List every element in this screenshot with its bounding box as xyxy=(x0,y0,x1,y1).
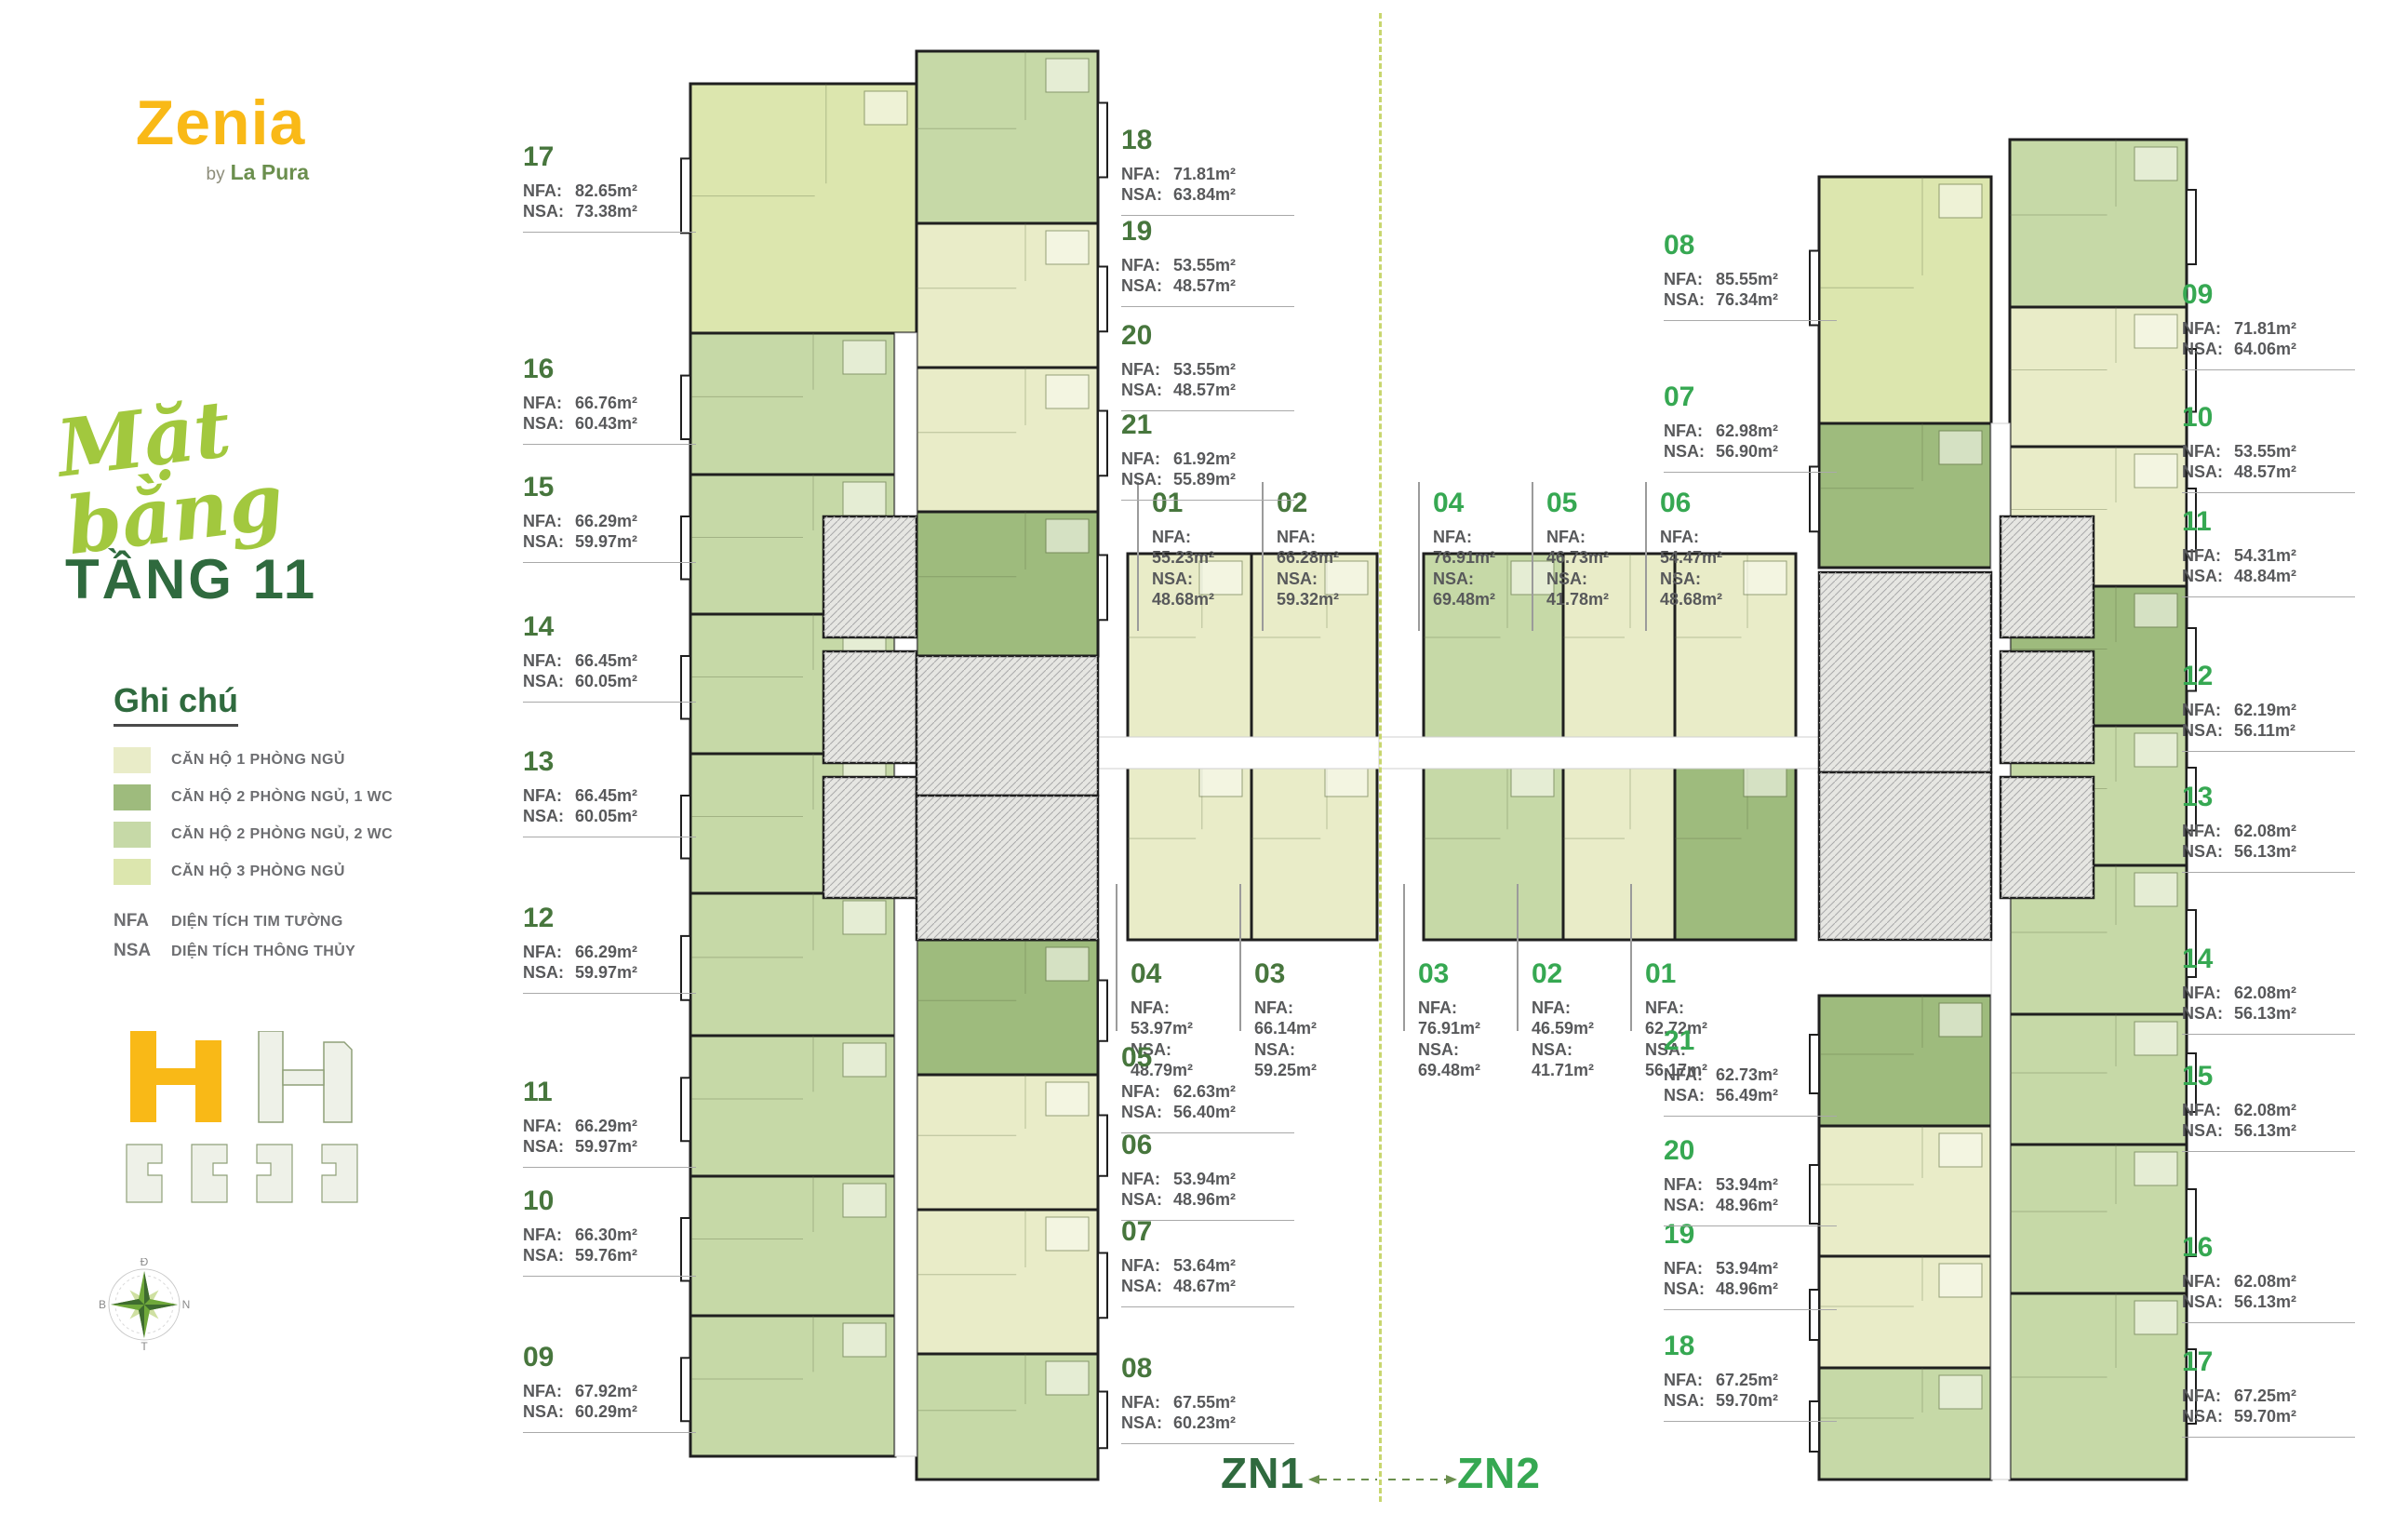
nsa-value: 59.76m² xyxy=(575,1246,637,1265)
unit-label-zn1-13: 13NFA:66.45m²NSA:60.05m² xyxy=(523,744,696,837)
legend-abbreviations: NFADIỆN TÍCH TIM TƯỜNGNSADIỆN TÍCH THÔNG… xyxy=(114,911,393,961)
label-leader-line xyxy=(1532,482,1533,631)
nfa-value: 62.08m² xyxy=(2234,822,2296,840)
unit-number: 05 xyxy=(1121,1040,1294,1076)
compass-top-label: Đ xyxy=(141,1258,149,1268)
label-underline xyxy=(1664,320,1837,321)
unit-label-zn1-20: 20NFA:53.55m²NSA:48.57m² xyxy=(1121,318,1294,411)
unit-number: 18 xyxy=(1121,123,1294,158)
nfa-label: NFA: xyxy=(1433,527,1485,548)
plan-corridor xyxy=(1379,737,1822,769)
unit-label-zn1-08: 08NFA:67.55m²NSA:60.23m² xyxy=(1121,1351,1294,1444)
legend-item-2br1wc: CĂN HỘ 2 PHÒNG NGỦ, 1 WC xyxy=(114,784,393,810)
nfa-value: 62.08m² xyxy=(2234,1272,2296,1291)
unit-label-zn2-09: 09NFA:71.81m²NSA:64.06m² xyxy=(2182,277,2355,370)
plan-core-hatch xyxy=(917,796,1098,940)
compass-bottom-label: T xyxy=(141,1340,148,1351)
unit-label-zn2-15: 15NFA:62.08m²NSA:56.13m² xyxy=(2182,1059,2355,1152)
unit-nfa-row: NFA:54.47m² xyxy=(1660,527,1770,569)
nfa-value: 66.29m² xyxy=(575,1117,637,1135)
nfa-value: 53.94m² xyxy=(1716,1259,1778,1278)
brand-logo: Zenia byLa Pura xyxy=(132,91,309,185)
unit-number: 10 xyxy=(2182,400,2355,435)
unit-number: 09 xyxy=(2182,277,2355,313)
keyplan-icon xyxy=(119,1031,380,1226)
nfa-value: 66.29m² xyxy=(575,943,637,961)
unit-nfa-row: NFA:66.29m² xyxy=(523,942,696,963)
keyplan-other-building xyxy=(259,1031,352,1122)
nsa-value: 60.29m² xyxy=(575,1402,637,1421)
legend-swatch-1br xyxy=(114,747,151,773)
nsa-label: NSA: xyxy=(1121,1189,1173,1211)
zone-label-zn1: ZN1 xyxy=(1221,1448,1305,1498)
unit-label-zn1-17: 17NFA:82.65m²NSA:73.38m² xyxy=(523,140,696,233)
nsa-value: 48.68m² xyxy=(1152,590,1214,609)
nfa-label: NFA: xyxy=(2182,821,2234,842)
nfa-label: NFA: xyxy=(2182,318,2234,340)
nfa-value: 62.73m² xyxy=(1716,1065,1778,1084)
nsa-label: NSA: xyxy=(523,1136,575,1158)
nfa-label: NFA: xyxy=(1664,1370,1716,1391)
nfa-value: 67.92m² xyxy=(575,1382,637,1400)
nfa-value: 66.30m² xyxy=(575,1225,637,1244)
unit-nfa-row: NFA:62.08m² xyxy=(2182,1271,2355,1292)
zone-divider-line xyxy=(1379,13,1382,1502)
unit-nfa-row: NFA:53.55m² xyxy=(1121,359,1294,381)
nsa-label: NSA: xyxy=(523,1245,575,1266)
unit-number: 09 xyxy=(523,1340,696,1375)
unit-nfa-row: NFA:66.30m² xyxy=(523,1225,696,1246)
unit-nfa-row: NFA:53.94m² xyxy=(1121,1169,1294,1190)
nsa-value: 48.96m² xyxy=(1716,1279,1778,1298)
nsa-label: NSA: xyxy=(1664,1195,1716,1216)
unit-nsa-row: NSA:48.67m² xyxy=(1121,1276,1294,1297)
unit-number: 21 xyxy=(1664,1024,1837,1059)
nfa-label: NFA: xyxy=(1131,998,1183,1019)
legend-label: CĂN HỘ 2 PHÒNG NGỦ, 1 WC xyxy=(171,789,393,806)
nfa-label: NFA: xyxy=(1664,421,1716,442)
nfa-value: 61.92m² xyxy=(1173,449,1236,468)
unit-label-zn1-16: 16NFA:66.76m²NSA:60.43m² xyxy=(523,352,696,445)
unit-number: 07 xyxy=(1664,380,1837,415)
nsa-label: NSA: xyxy=(2182,1292,2234,1313)
unit-label-zn1-02: 02NFA:66.28m²NSA:59.32m² xyxy=(1277,486,1386,610)
nsa-value: 60.05m² xyxy=(575,807,637,825)
unit-nsa-row: NSA:60.23m² xyxy=(1121,1413,1294,1434)
nsa-value: 76.34m² xyxy=(1716,290,1778,309)
unit-number: 03 xyxy=(1254,957,1364,992)
unit-number: 05 xyxy=(1546,486,1656,521)
nsa-value: 60.23m² xyxy=(1173,1413,1236,1432)
unit-nfa-row: NFA:67.55m² xyxy=(1121,1392,1294,1413)
nfa-label: NFA: xyxy=(1121,1255,1173,1277)
nfa-label: NFA: xyxy=(1254,998,1306,1019)
nfa-value: 46.59m² xyxy=(1532,1019,1594,1038)
unit-number: 13 xyxy=(2182,780,2355,815)
floorplan-poster: Zenia byLa Pura Mặt bằng TẦNG 11 Ghi chú… xyxy=(0,0,2382,1540)
unit-label-zn2-17: 17NFA:67.25m²NSA:59.70m² xyxy=(2182,1345,2355,1438)
logo-byline: byLa Pura xyxy=(132,160,309,185)
unit-number: 01 xyxy=(1645,957,1755,992)
unit-nfa-row: NFA:67.92m² xyxy=(523,1381,696,1402)
nsa-label: NSA: xyxy=(1121,1413,1173,1434)
plan-core-hatch xyxy=(2001,516,2094,637)
logo-text: Zenia xyxy=(132,91,309,154)
nfa-value: 54.47m² xyxy=(1660,548,1722,567)
label-underline xyxy=(523,1167,696,1168)
label-underline xyxy=(2182,492,2355,493)
nfa-value: 53.55m² xyxy=(2234,442,2296,461)
zone-label-zn2: ZN2 xyxy=(1457,1448,1541,1498)
unit-nsa-row: NSA:59.97m² xyxy=(523,962,696,984)
plan-core-hatch xyxy=(1819,772,1991,940)
nsa-value: 59.97m² xyxy=(575,532,637,551)
nsa-label: NSA: xyxy=(2182,720,2234,742)
nfa-value: 66.76m² xyxy=(575,394,637,412)
nsa-label: NSA: xyxy=(1532,1039,1584,1061)
unit-label-zn2-05: 05NFA:46.73m²NSA:41.78m² xyxy=(1546,486,1656,610)
unit-nsa-row: NSA:56.13m² xyxy=(2182,1120,2355,1142)
legend-abbr-nsa: NSADIỆN TÍCH THÔNG THỦY xyxy=(114,941,393,961)
nsa-value: 56.40m² xyxy=(1173,1103,1236,1121)
nsa-label: NSA: xyxy=(1664,1085,1716,1106)
unit-label-zn1-10: 10NFA:66.30m²NSA:59.76m² xyxy=(523,1184,696,1277)
unit-number: 16 xyxy=(523,352,696,387)
unit-label-zn1-14: 14NFA:66.45m²NSA:60.05m² xyxy=(523,609,696,703)
unit-nsa-row: NSA:48.96m² xyxy=(1664,1279,1837,1300)
unit-nfa-row: NFA:62.08m² xyxy=(2182,1100,2355,1121)
nsa-value: 59.70m² xyxy=(2234,1407,2296,1426)
nfa-label: NFA: xyxy=(1152,527,1204,548)
nfa-value: 62.19m² xyxy=(2234,701,2296,719)
nsa-value: 41.78m² xyxy=(1546,590,1609,609)
label-underline xyxy=(523,444,696,445)
nfa-label: NFA: xyxy=(523,1381,575,1402)
nsa-value: 73.38m² xyxy=(575,202,637,221)
unit-nfa-row: NFA:71.81m² xyxy=(2182,318,2355,340)
unit-number: 15 xyxy=(523,470,696,505)
nfa-value: 55.23m² xyxy=(1152,548,1214,567)
unit-nsa-row: NSA:56.40m² xyxy=(1121,1102,1294,1123)
unit-nfa-row: NFA:62.08m² xyxy=(2182,821,2355,842)
nfa-value: 66.45m² xyxy=(575,786,637,805)
nsa-value: 59.32m² xyxy=(1277,590,1339,609)
label-underline xyxy=(1121,1306,1294,1307)
nsa-value: 56.49m² xyxy=(1716,1086,1778,1105)
nfa-label: NFA: xyxy=(2182,441,2234,462)
unit-label-zn2-02: 02NFA:46.59m²NSA:41.71m² xyxy=(1532,957,1641,1081)
nsa-label: NSA: xyxy=(1121,184,1173,206)
unit-label-zn1-05: 05NFA:62.63m²NSA:56.40m² xyxy=(1121,1040,1294,1133)
legend-items: CĂN HỘ 1 PHÒNG NGỦCĂN HỘ 2 PHÒNG NGỦ, 1 … xyxy=(114,747,393,885)
label-underline xyxy=(1664,1225,1837,1226)
unit-nsa-row: NSA:56.13m² xyxy=(2182,841,2355,863)
unit-nfa-row: NFA:53.94m² xyxy=(1664,1174,1837,1196)
nfa-label: NFA: xyxy=(523,785,575,807)
unit-nfa-row: NFA:76.91m² xyxy=(1433,527,1543,569)
unit-nsa-row: NSA:60.05m² xyxy=(523,806,696,827)
plan-core-hatch xyxy=(823,777,917,898)
label-leader-line xyxy=(1262,482,1264,631)
nsa-label: NSA: xyxy=(1433,569,1485,590)
nfa-value: 53.94m² xyxy=(1716,1175,1778,1194)
unit-nfa-row: NFA:62.08m² xyxy=(2182,983,2355,1004)
legend-swatch-2br1wc xyxy=(114,784,151,810)
unit-nsa-row: NSA:56.90m² xyxy=(1664,441,1837,462)
nsa-label: NSA: xyxy=(1121,469,1173,490)
nfa-value: 67.55m² xyxy=(1173,1393,1236,1412)
legend-item-3br: CĂN HỘ 3 PHÒNG NGỦ xyxy=(114,859,393,885)
page-title-floor: TẦNG 11 xyxy=(65,547,317,611)
label-underline xyxy=(523,702,696,703)
nfa-value: 53.97m² xyxy=(1131,1019,1193,1038)
plan-core-hatch xyxy=(1819,572,1991,772)
unit-nsa-row: NSA:48.57m² xyxy=(1121,380,1294,401)
legend-swatch-2br2wc xyxy=(114,822,151,848)
nsa-label: NSA: xyxy=(523,671,575,692)
label-underline xyxy=(1121,1443,1294,1444)
nsa-label: NSA: xyxy=(2182,1406,2234,1427)
nfa-value: 66.28m² xyxy=(1277,548,1339,567)
nsa-value: 60.05m² xyxy=(575,672,637,690)
nsa-label: NSA: xyxy=(523,201,575,222)
nfa-value: 76.91m² xyxy=(1433,548,1495,567)
unit-nsa-row: NSA:76.34m² xyxy=(1664,289,1837,311)
nfa-label: NFA: xyxy=(1121,1081,1173,1103)
nfa-label: NFA: xyxy=(1664,1065,1716,1086)
nfa-value: 54.31m² xyxy=(2234,546,2296,565)
compass-right-label: N xyxy=(182,1298,191,1311)
legend-item-2br2wc: CĂN HỘ 2 PHÒNG NGỦ, 2 WC xyxy=(114,822,393,848)
label-underline xyxy=(1664,1309,1837,1310)
nfa-value: 66.45m² xyxy=(575,651,637,670)
unit-nfa-row: NFA:53.55m² xyxy=(2182,441,2355,462)
legend-swatch-3br xyxy=(114,859,151,885)
label-leader-line xyxy=(1403,884,1405,1031)
unit-nsa-row: NSA:59.97m² xyxy=(523,531,696,553)
plan-core-hatch xyxy=(823,516,917,637)
nsa-label: NSA: xyxy=(1546,569,1599,590)
nsa-label: NSA: xyxy=(1121,1276,1173,1297)
unit-nfa-row: NFA:67.25m² xyxy=(1664,1370,1837,1391)
unit-nsa-row: NSA:69.48m² xyxy=(1433,569,1543,610)
legend: Ghi chú CĂN HỘ 1 PHÒNG NGỦCĂN HỘ 2 PHÒNG… xyxy=(114,681,393,961)
unit-nfa-row: NFA:62.63m² xyxy=(1121,1081,1294,1103)
legend-label: CĂN HỘ 3 PHÒNG NGỦ xyxy=(171,864,345,880)
label-underline xyxy=(523,562,696,563)
unit-nsa-row: NSA:59.32m² xyxy=(1277,569,1386,610)
nfa-label: NFA: xyxy=(1121,255,1173,276)
nsa-label: NSA: xyxy=(1660,569,1712,590)
nfa-label: NFA: xyxy=(1532,998,1584,1019)
unit-number: 03 xyxy=(1418,957,1528,992)
nfa-value: 67.25m² xyxy=(1716,1371,1778,1389)
nsa-value: 48.57m² xyxy=(1173,381,1236,399)
nsa-value: 48.57m² xyxy=(2234,462,2296,481)
unit-number: 14 xyxy=(2182,942,2355,977)
unit-label-zn2-08: 08NFA:85.55m²NSA:76.34m² xyxy=(1664,228,1837,321)
label-leader-line xyxy=(1116,884,1117,1031)
nsa-value: 48.84m² xyxy=(2234,567,2296,585)
keyplan-current-building xyxy=(130,1031,221,1122)
floorplan-drawing xyxy=(651,37,2215,1507)
unit-nfa-row: NFA:82.65m² xyxy=(523,181,696,202)
unit-nfa-row: NFA:62.73m² xyxy=(1664,1065,1837,1086)
nsa-value: 41.71m² xyxy=(1532,1061,1594,1079)
nsa-value: 55.89m² xyxy=(1173,470,1236,489)
unit-nsa-row: NSA:60.29m² xyxy=(523,1401,696,1423)
page-title-script: Mặt bằng xyxy=(53,372,386,566)
unit-number: 07 xyxy=(1121,1214,1294,1250)
nsa-label: NSA: xyxy=(1418,1039,1470,1061)
nsa-value: 56.11m² xyxy=(2234,721,2295,740)
unit-number: 02 xyxy=(1532,957,1641,992)
nfa-label: NFA: xyxy=(1121,359,1173,381)
plan-corridor xyxy=(1098,737,1379,769)
label-leader-line xyxy=(1137,482,1139,631)
nsa-label: NSA: xyxy=(2182,339,2234,360)
nfa-label: NFA: xyxy=(523,1116,575,1137)
unit-nsa-row: NSA:56.13m² xyxy=(2182,1292,2355,1313)
abbr-definition: DIỆN TÍCH TIM TƯỜNG xyxy=(171,914,343,931)
unit-label-zn2-04: 04NFA:76.91m²NSA:69.48m² xyxy=(1433,486,1543,610)
unit-nsa-row: NSA:73.38m² xyxy=(523,201,696,222)
byline-brand: La Pura xyxy=(231,160,309,184)
unit-nfa-row: NFA:55.23m² xyxy=(1152,527,1262,569)
label-underline xyxy=(2182,596,2355,597)
label-underline xyxy=(523,1432,696,1433)
label-underline xyxy=(2182,1322,2355,1323)
nsa-value: 69.48m² xyxy=(1418,1061,1480,1079)
nfa-value: 71.81m² xyxy=(1173,165,1236,183)
nsa-value: 56.13m² xyxy=(2234,842,2296,861)
unit-label-zn2-20: 20NFA:53.94m²NSA:48.96m² xyxy=(1664,1133,1837,1226)
unit-nfa-row: NFA:53.55m² xyxy=(1121,255,1294,276)
nfa-label: NFA: xyxy=(1664,1174,1716,1196)
nsa-label: NSA: xyxy=(1121,1102,1173,1123)
legend-label: CĂN HỘ 2 PHÒNG NGỦ, 2 WC xyxy=(171,826,393,843)
unit-label-zn2-13: 13NFA:62.08m²NSA:56.13m² xyxy=(2182,780,2355,873)
unit-nsa-row: NSA:59.97m² xyxy=(523,1136,696,1158)
nsa-label: NSA: xyxy=(523,806,575,827)
unit-label-zn2-21: 21NFA:62.73m²NSA:56.49m² xyxy=(1664,1024,1837,1117)
nfa-value: 71.81m² xyxy=(2234,319,2296,338)
unit-nfa-row: NFA:66.29m² xyxy=(523,1116,696,1137)
unit-label-zn1-15: 15NFA:66.29m²NSA:59.97m² xyxy=(523,470,696,563)
nsa-value: 64.06m² xyxy=(2234,340,2296,358)
unit-nfa-row: NFA:62.19m² xyxy=(2182,700,2355,721)
unit-nsa-row: NSA:41.78m² xyxy=(1546,569,1656,610)
unit-nsa-row: NSA:48.68m² xyxy=(1660,569,1770,610)
plan-core-hatch xyxy=(823,651,917,763)
nsa-label: NSA: xyxy=(1664,1390,1716,1412)
nsa-label: NSA: xyxy=(1152,569,1204,590)
zn1-arrow-icon xyxy=(1306,1472,1379,1487)
nsa-value: 56.13m² xyxy=(2234,1121,2296,1140)
nsa-value: 63.84m² xyxy=(1173,185,1236,204)
unit-number: 11 xyxy=(2182,504,2355,540)
unit-number: 14 xyxy=(523,609,696,645)
unit-label-zn2-06: 06NFA:54.47m²NSA:48.68m² xyxy=(1660,486,1770,610)
unit-nsa-row: NSA:69.48m² xyxy=(1418,1039,1528,1081)
unit-label-zn2-12: 12NFA:62.19m²NSA:56.11m² xyxy=(2182,659,2355,752)
unit-label-zn2-11: 11NFA:54.31m²NSA:48.84m² xyxy=(2182,504,2355,597)
nfa-value: 66.14m² xyxy=(1254,1019,1317,1038)
nfa-label: NFA: xyxy=(2182,1386,2234,1407)
zn2-arrow-icon xyxy=(1386,1472,1459,1487)
unit-number: 17 xyxy=(523,140,696,175)
unit-nfa-row: NFA:62.98m² xyxy=(1664,421,1837,442)
unit-number: 18 xyxy=(1664,1329,1837,1364)
nfa-label: NFA: xyxy=(523,1225,575,1246)
nfa-label: NFA: xyxy=(2182,983,2234,1004)
label-underline xyxy=(1664,1421,1837,1422)
nfa-value: 53.94m² xyxy=(1173,1170,1236,1188)
unit-nfa-row: NFA:53.94m² xyxy=(1664,1258,1837,1279)
nfa-label: NFA: xyxy=(523,511,575,532)
unit-label-zn2-18: 18NFA:67.25m²NSA:59.70m² xyxy=(1664,1329,1837,1422)
unit-nsa-row: NSA:48.84m² xyxy=(2182,566,2355,587)
nsa-value: 69.48m² xyxy=(1433,590,1495,609)
unit-number: 12 xyxy=(2182,659,2355,694)
label-underline xyxy=(523,993,696,994)
unit-label-zn1-09: 09NFA:67.92m²NSA:60.29m² xyxy=(523,1340,696,1433)
unit-number: 16 xyxy=(2182,1230,2355,1265)
unit-nfa-row: NFA:71.81m² xyxy=(1121,164,1294,185)
nfa-label: NFA: xyxy=(2182,700,2234,721)
nfa-value: 53.64m² xyxy=(1173,1256,1236,1275)
nfa-value: 82.65m² xyxy=(575,181,637,200)
nsa-label: NSA: xyxy=(2182,841,2234,863)
byline-prefix: by xyxy=(207,165,225,184)
unit-label-zn1-06: 06NFA:53.94m²NSA:48.96m² xyxy=(1121,1128,1294,1221)
label-leader-line xyxy=(1418,482,1420,631)
unit-nsa-row: NSA:60.05m² xyxy=(523,671,696,692)
unit-label-zn1-11: 11NFA:66.29m²NSA:59.97m² xyxy=(523,1075,696,1168)
abbr-term: NFA xyxy=(114,911,171,931)
unit-number: 10 xyxy=(523,1184,696,1219)
unit-number: 15 xyxy=(2182,1059,2355,1094)
abbr-term: NSA xyxy=(114,941,171,961)
nfa-label: NFA: xyxy=(1418,998,1470,1019)
legend-heading: Ghi chú xyxy=(114,681,238,727)
label-underline xyxy=(523,837,696,837)
unit-number: 20 xyxy=(1121,318,1294,354)
nfa-label: NFA: xyxy=(1664,269,1716,290)
unit-label-zn2-16: 16NFA:62.08m²NSA:56.13m² xyxy=(2182,1230,2355,1323)
unit-label-zn2-19: 19NFA:53.94m²NSA:48.96m² xyxy=(1664,1217,1837,1310)
nsa-value: 48.68m² xyxy=(1660,590,1722,609)
nsa-value: 56.90m² xyxy=(1716,442,1778,461)
nfa-label: NFA: xyxy=(2182,1271,2234,1292)
unit-nsa-row: NSA:55.89m² xyxy=(1121,469,1294,490)
legend-label: CĂN HỘ 1 PHÒNG NGỦ xyxy=(171,752,345,769)
plan-core-hatch xyxy=(2001,777,2094,898)
unit-nfa-row: NFA:66.45m² xyxy=(523,785,696,807)
nfa-label: NFA: xyxy=(2182,545,2234,567)
unit-nfa-row: NFA:53.97m² xyxy=(1131,998,1240,1039)
nfa-label: NFA: xyxy=(1121,1169,1173,1190)
unit-label-zn2-03: 03NFA:76.91m²NSA:69.48m² xyxy=(1418,957,1528,1081)
label-leader-line xyxy=(1645,482,1647,631)
nsa-value: 59.97m² xyxy=(575,963,637,982)
plan-core-hatch xyxy=(2001,651,2094,763)
nsa-label: NSA: xyxy=(1121,380,1173,401)
nfa-label: NFA: xyxy=(1121,164,1173,185)
unit-nsa-row: NSA:59.70m² xyxy=(2182,1406,2355,1427)
unit-label-zn1-07: 07NFA:53.64m²NSA:48.67m² xyxy=(1121,1214,1294,1307)
unit-nfa-row: NFA:46.73m² xyxy=(1546,527,1656,569)
